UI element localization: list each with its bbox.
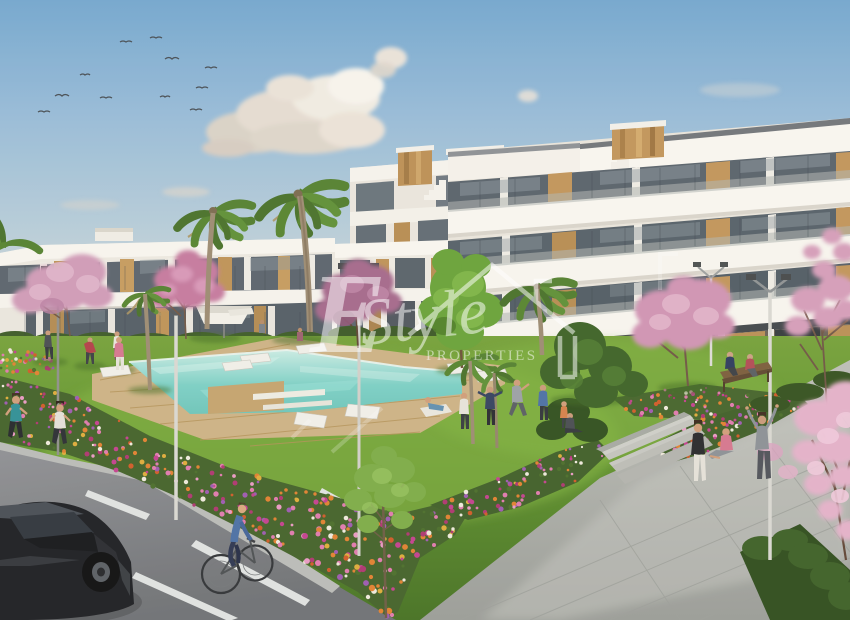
svg-text:PROPERTIES: PROPERTIES: [426, 348, 537, 364]
